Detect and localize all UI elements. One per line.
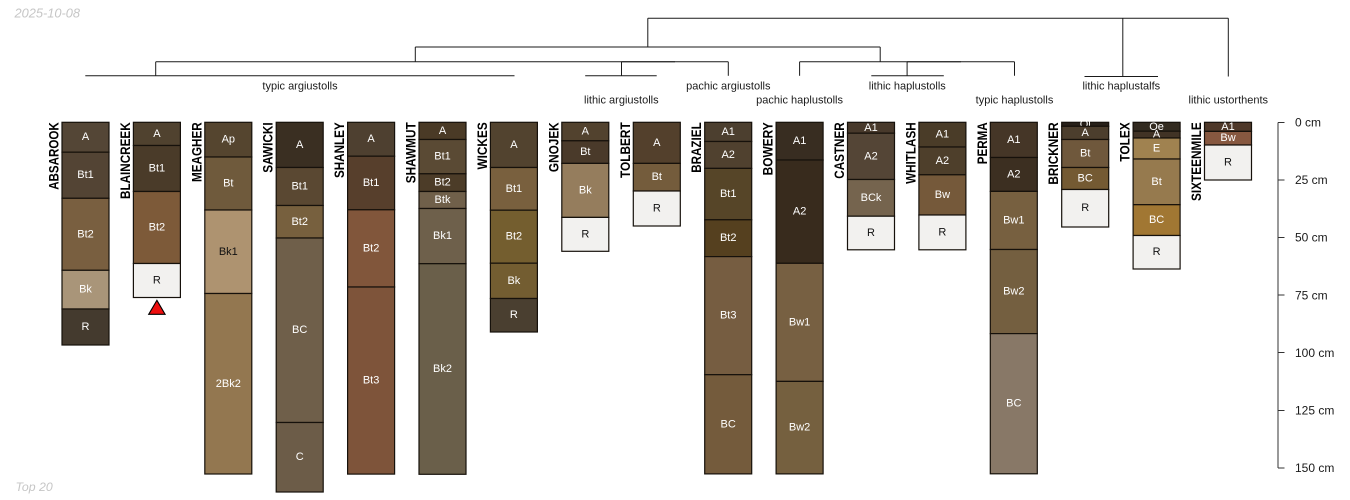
svg-text:Bt: Bt (1151, 176, 1161, 188)
svg-text:BC: BC (1149, 214, 1164, 226)
svg-text:A2: A2 (936, 155, 949, 167)
svg-text:SHANLEY: SHANLEY (331, 122, 347, 178)
svg-text:lithic ustorthents: lithic ustorthents (1189, 95, 1269, 107)
svg-text:BRICKNER: BRICKNER (1045, 122, 1061, 184)
svg-text:A: A (153, 128, 161, 140)
svg-text:A: A (653, 137, 661, 149)
svg-text:Bt1: Bt1 (720, 188, 737, 200)
svg-text:Bt2: Bt2 (434, 177, 451, 189)
svg-text:Bw2: Bw2 (789, 422, 810, 434)
svg-text:TOLBERT: TOLBERT (617, 122, 633, 178)
svg-text:Bw: Bw (935, 189, 950, 201)
svg-text:A: A (296, 139, 304, 151)
svg-text:A2: A2 (721, 149, 734, 161)
svg-text:Bt1: Bt1 (149, 163, 166, 175)
svg-text:MEAGHER: MEAGHER (188, 122, 204, 182)
svg-text:BLAINCREEK: BLAINCREEK (117, 122, 133, 199)
svg-text:2025-10-08: 2025-10-08 (14, 6, 81, 21)
svg-text:Bt2: Bt2 (506, 231, 523, 243)
svg-text:Bt3: Bt3 (363, 375, 380, 387)
svg-text:WHITLASH: WHITLASH (902, 122, 918, 184)
svg-text:BC: BC (1006, 398, 1021, 410)
svg-text:R: R (510, 309, 518, 321)
svg-text:Bt1: Bt1 (77, 169, 94, 181)
svg-text:A: A (439, 125, 447, 137)
svg-text:Ap: Ap (222, 134, 235, 146)
svg-text:50 cm: 50 cm (1295, 231, 1328, 245)
svg-text:Bt1: Bt1 (363, 177, 380, 189)
svg-text:C: C (296, 451, 304, 463)
svg-text:WICKES: WICKES (474, 122, 490, 169)
svg-text:A2: A2 (793, 206, 806, 218)
svg-text:100 cm: 100 cm (1295, 346, 1334, 360)
svg-text:75 cm: 75 cm (1295, 288, 1328, 302)
svg-text:2Bk2: 2Bk2 (216, 378, 241, 390)
svg-text:BOWERY: BOWERY (760, 122, 776, 176)
svg-text:Bt2: Bt2 (291, 216, 308, 228)
svg-text:R: R (82, 321, 90, 333)
svg-text:Bw: Bw (1220, 132, 1235, 144)
svg-text:Bt1: Bt1 (434, 151, 451, 163)
svg-text:Bw2: Bw2 (1003, 286, 1024, 298)
svg-text:lithic haplustalfs: lithic haplustalfs (1082, 81, 1160, 93)
svg-text:Bt2: Bt2 (720, 232, 737, 244)
svg-text:A1: A1 (793, 135, 806, 147)
svg-text:A1: A1 (936, 129, 949, 141)
svg-text:PERMA: PERMA (974, 122, 990, 164)
svg-text:SAWICKI: SAWICKI (260, 122, 276, 173)
svg-text:Bk1: Bk1 (219, 246, 238, 258)
svg-text:Bt: Bt (580, 146, 590, 158)
svg-text:pachic haplustolls: pachic haplustolls (756, 95, 843, 107)
svg-text:Bk: Bk (79, 284, 92, 296)
svg-text:Bt2: Bt2 (149, 222, 166, 234)
svg-text:ABSAROOK: ABSAROOK (46, 122, 62, 190)
svg-text:Bt: Bt (223, 178, 233, 190)
svg-text:A1: A1 (721, 126, 734, 138)
svg-text:BCk: BCk (861, 192, 882, 204)
svg-text:pachic argiustolls: pachic argiustolls (686, 81, 771, 93)
svg-text:125 cm: 125 cm (1295, 404, 1334, 418)
svg-text:GNOJEK: GNOJEK (545, 122, 561, 172)
svg-text:Btk: Btk (435, 194, 451, 206)
svg-text:Bw1: Bw1 (789, 316, 810, 328)
svg-text:Bt2: Bt2 (363, 242, 380, 254)
svg-text:Bt1: Bt1 (506, 183, 523, 195)
svg-text:25 cm: 25 cm (1295, 173, 1328, 187)
svg-text:A: A (82, 131, 90, 143)
svg-text:lithic argiustolls: lithic argiustolls (584, 95, 659, 107)
svg-text:A: A (1082, 127, 1090, 139)
svg-text:A2: A2 (1007, 168, 1020, 180)
svg-text:Bt3: Bt3 (720, 310, 737, 322)
svg-text:BRAZIEL: BRAZIEL (688, 122, 704, 173)
svg-text:R: R (653, 203, 661, 215)
svg-text:R: R (867, 227, 875, 239)
svg-text:A1: A1 (864, 122, 877, 134)
svg-text:Bk1: Bk1 (433, 230, 452, 242)
svg-text:A: A (582, 126, 590, 138)
svg-text:lithic haplustolls: lithic haplustolls (869, 81, 947, 93)
svg-text:150 cm: 150 cm (1295, 461, 1334, 475)
svg-text:typic argiustolls: typic argiustolls (262, 81, 338, 93)
svg-text:A2: A2 (864, 150, 877, 162)
svg-text:SIXTEENMILE: SIXTEENMILE (1188, 122, 1204, 201)
svg-text:SHAWMUT: SHAWMUT (403, 122, 419, 183)
svg-text:Bt: Bt (1080, 148, 1090, 160)
svg-text:A1: A1 (1007, 134, 1020, 146)
svg-text:0 cm: 0 cm (1295, 116, 1321, 130)
svg-text:Bk: Bk (507, 275, 520, 287)
svg-text:R: R (1081, 202, 1089, 214)
svg-text:CASTNER: CASTNER (831, 122, 847, 178)
svg-text:R: R (1153, 246, 1161, 258)
svg-text:R: R (153, 275, 161, 287)
svg-text:Bk: Bk (579, 184, 592, 196)
svg-text:A: A (367, 133, 375, 145)
svg-text:BC: BC (1078, 173, 1093, 185)
svg-text:BC: BC (721, 418, 736, 430)
svg-text:R: R (581, 228, 589, 240)
svg-text:A: A (510, 139, 518, 151)
svg-text:Bt2: Bt2 (77, 228, 94, 240)
svg-text:Bw1: Bw1 (1003, 214, 1024, 226)
svg-text:Bt1: Bt1 (291, 181, 308, 193)
svg-text:typic haplustolls: typic haplustolls (976, 95, 1054, 107)
svg-text:TOLEX: TOLEX (1117, 122, 1133, 162)
svg-text:R: R (1224, 157, 1232, 169)
svg-text:R: R (938, 226, 946, 238)
svg-text:Top 20: Top 20 (16, 480, 53, 494)
svg-text:Bk2: Bk2 (433, 363, 452, 375)
svg-text:BC: BC (292, 324, 307, 336)
svg-text:Bt: Bt (652, 171, 662, 183)
svg-text:E: E (1153, 143, 1160, 155)
